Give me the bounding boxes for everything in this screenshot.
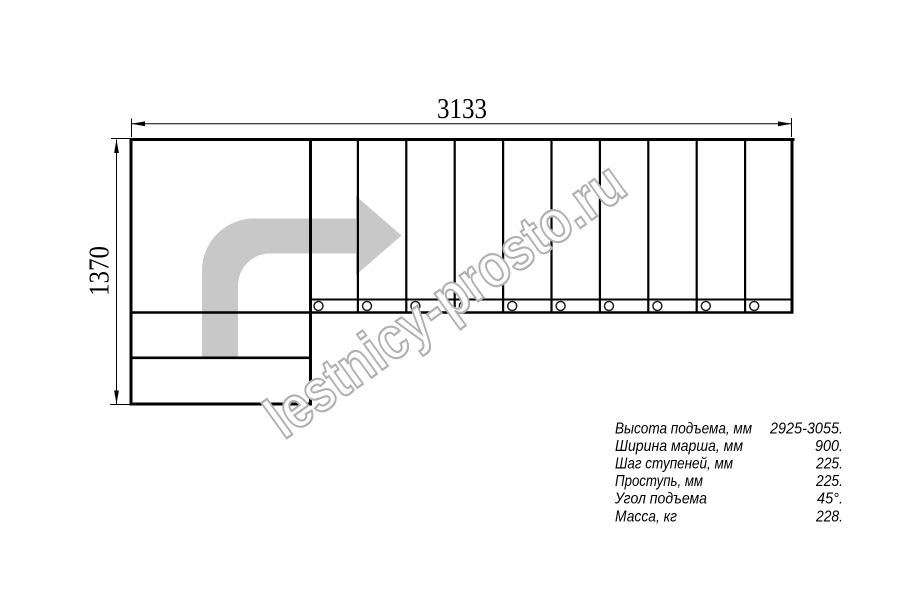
svg-text:225.: 225. bbox=[815, 456, 843, 473]
svg-text:Угол подъема: Угол подъема bbox=[614, 491, 707, 508]
svg-text:1370: 1370 bbox=[84, 246, 116, 296]
svg-text:Проступь, мм: Проступь, мм bbox=[615, 473, 703, 490]
svg-text:3133: 3133 bbox=[437, 93, 487, 125]
svg-text:45°.: 45°. bbox=[817, 491, 843, 508]
svg-text:Шаг ступеней, мм: Шаг ступеней, мм bbox=[615, 456, 733, 473]
svg-text:2925-3055.: 2925-3055. bbox=[769, 420, 843, 437]
svg-text:900.: 900. bbox=[815, 438, 843, 455]
svg-text:Масса, кг: Масса, кг bbox=[615, 508, 677, 525]
svg-text:228.: 228. bbox=[815, 508, 843, 525]
svg-text:225.: 225. bbox=[815, 473, 843, 490]
svg-text:Ширина марша, мм: Ширина марша, мм bbox=[615, 438, 743, 455]
svg-text:Высота подъема, мм: Высота подъема, мм bbox=[615, 420, 752, 437]
